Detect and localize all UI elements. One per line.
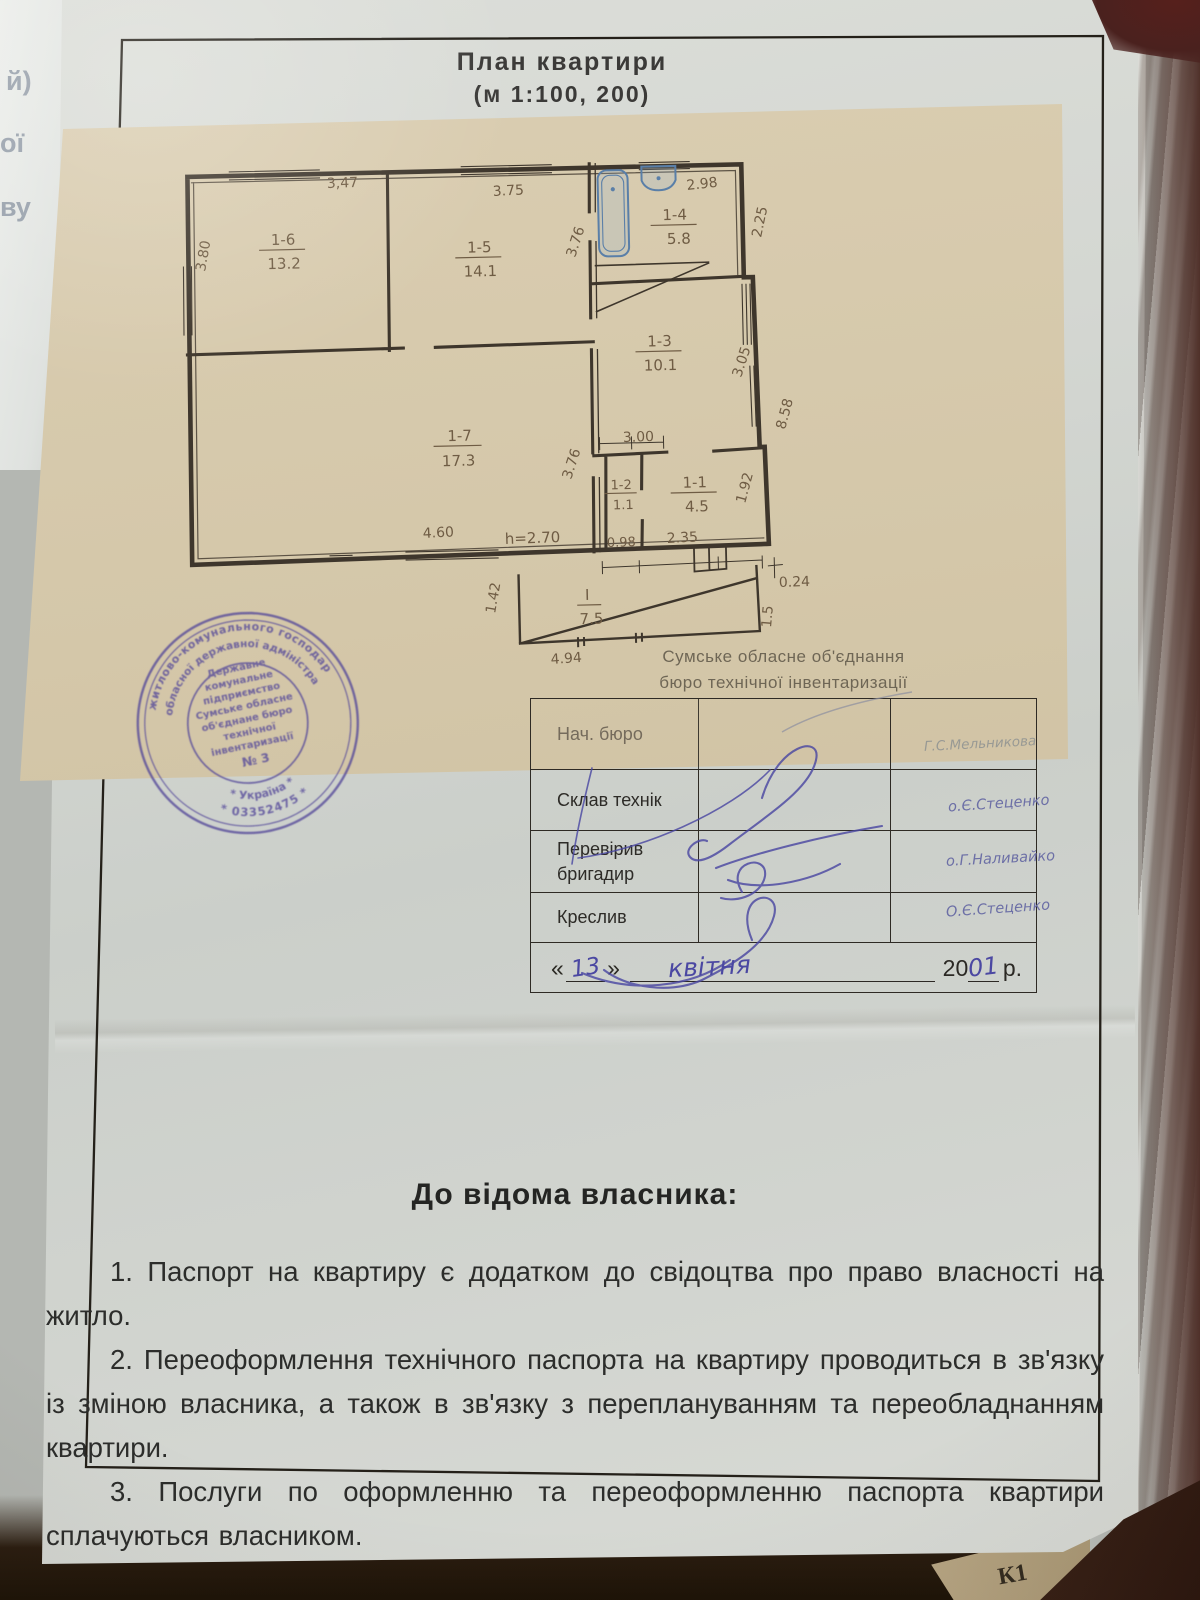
- notice-heading: До відома власника:: [46, 1178, 1104, 1212]
- dim-4-60: 4.60: [422, 524, 454, 542]
- title-line2: (м 1:100, 200): [402, 81, 722, 108]
- dim-3-76-lower: 3.76: [560, 447, 585, 482]
- stamp-center-text: Державне комунальне підприємство Сумське…: [187, 653, 306, 777]
- org-line1: Сумське обласне об'єднання: [530, 644, 1037, 670]
- dim-1-5: 1.5: [759, 605, 777, 629]
- dim-3-05: 3.05: [730, 345, 755, 380]
- date-century: 20: [943, 955, 969, 982]
- org-header: Сумське обласне об'єднання бюро технічно…: [530, 644, 1037, 696]
- underlay-letter: ої: [0, 128, 24, 159]
- exterior-walls: [183, 164, 769, 565]
- row-label-line2: бригадир: [557, 862, 698, 887]
- room-label-1-1: 1-1 4.5: [670, 473, 717, 516]
- row-label: Перевірив: [557, 837, 698, 862]
- underlay-corner-text: К1: [996, 1560, 1030, 1592]
- handwritten-day: 13: [566, 955, 605, 982]
- plastic-wrap: [1138, 0, 1200, 1600]
- svg-text:1-4: 1-4: [662, 206, 687, 225]
- table-row: Нач. бюро: [531, 699, 1036, 769]
- room-label-1-3: 1-3 10.1: [635, 332, 682, 375]
- dim-1-42: 1.42: [483, 581, 504, 614]
- dim-1-92: 1.92: [733, 471, 757, 505]
- dim-0-24: 0.24: [779, 574, 811, 591]
- svg-text:№ 3: № 3: [240, 749, 271, 770]
- svg-text:І: І: [585, 586, 590, 604]
- underlay-letter: ву: [0, 192, 31, 223]
- bathtub-icon: [597, 170, 629, 257]
- svg-text:1-5: 1-5: [467, 238, 492, 257]
- notice-item-2: 2. Переоформлення технічного паспорта на…: [46, 1338, 1104, 1470]
- svg-text:1.1: 1.1: [613, 498, 634, 513]
- row-label: Нач. бюро: [557, 722, 698, 747]
- svg-text:7.5: 7.5: [579, 610, 603, 629]
- underlay-letter: й): [6, 66, 32, 97]
- svg-text:17.3: 17.3: [442, 451, 476, 470]
- exterior-wall-inner-line: [190, 170, 764, 559]
- dim-2-98: 2.98: [686, 175, 719, 194]
- svg-text:1-7: 1-7: [447, 427, 472, 446]
- row-label: Креслив: [557, 905, 698, 930]
- svg-text:1-1: 1-1: [682, 473, 707, 492]
- room-label-1-5: 1-5 14.1: [455, 238, 502, 281]
- quote-close: »: [607, 955, 620, 982]
- dim-3-75: 3.75: [492, 182, 524, 200]
- svg-text:13.2: 13.2: [267, 254, 301, 273]
- org-line2: бюро технічної інвентаризації: [530, 670, 1037, 696]
- handwritten-month: квітня: [667, 950, 751, 983]
- svg-text:1-6: 1-6: [271, 230, 296, 249]
- room-label-1-4: 1-4 5.8: [650, 205, 697, 248]
- date-line: «13» квітня 2001 р.: [531, 942, 1036, 991]
- svg-text:4.5: 4.5: [685, 497, 709, 516]
- notice-item-3: 3. Послуги по оформленню та переоформлен…: [46, 1470, 1104, 1558]
- svg-text:5.8: 5.8: [667, 230, 691, 249]
- photo-background: й) ої ву К1 План квартири (м 1:100, 200): [0, 0, 1200, 1600]
- signature-cell: [699, 831, 891, 892]
- dim-2-25: 2.25: [749, 205, 771, 239]
- sink-icon: [641, 166, 676, 191]
- room-label-1-7: 1-7 17.3: [433, 426, 482, 470]
- dim-0-98: 0.98: [607, 535, 636, 551]
- date-underline: квітня: [630, 948, 935, 982]
- owner-notice: До відома власника: 1. Паспорт на кварти…: [46, 1178, 1104, 1558]
- stair-lines: [596, 262, 710, 312]
- signature-cell: [699, 770, 891, 830]
- signature-cell: [699, 893, 891, 942]
- height-note: h=2.70: [505, 528, 561, 548]
- svg-text:14.1: 14.1: [463, 262, 497, 281]
- room-label-1-2: 1-2 1.1: [604, 478, 637, 514]
- room-label-1-6: 1-6 13.2: [259, 230, 306, 273]
- dim-3-00: 3.00: [623, 429, 655, 446]
- quote-open: «: [551, 955, 564, 982]
- title-line1: План квартири: [402, 48, 722, 77]
- document-title: План квартири (м 1:100, 200): [402, 48, 722, 108]
- notice-item-1: 1. Паспорт на квартиру є додатком до сві…: [46, 1250, 1104, 1338]
- dim-8-58: 8.58: [773, 397, 797, 431]
- dim-3-80: 3.80: [193, 239, 214, 272]
- porch-outline: [518, 566, 760, 643]
- date-suffix: р.: [1003, 955, 1022, 982]
- round-stamp: ння житлово-комунального господарства ої…: [120, 596, 376, 852]
- signature-cell: [699, 699, 891, 769]
- handwritten-year: 01: [968, 953, 999, 982]
- row-label: Склав технік: [557, 788, 698, 813]
- dim-3-47: 3,47: [327, 175, 359, 192]
- dim-2-35: 2.35: [666, 529, 698, 547]
- porch-label: І 7.5: [577, 586, 604, 629]
- svg-text:1-3: 1-3: [647, 332, 672, 351]
- svg-text:10.1: 10.1: [644, 356, 678, 375]
- entrance-step: [694, 545, 727, 572]
- svg-text:1-2: 1-2: [610, 478, 632, 493]
- dim-3-76-upper: 3.76: [564, 225, 589, 260]
